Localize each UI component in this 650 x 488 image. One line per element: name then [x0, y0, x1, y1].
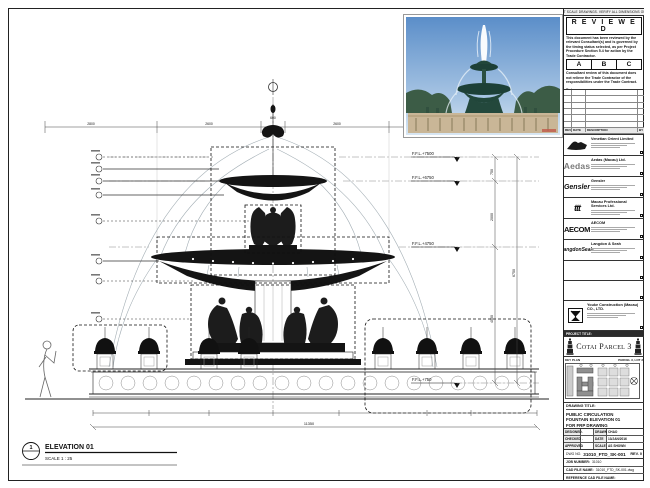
copyright-mark: [640, 193, 644, 197]
key-plan: KEY PLAN PARCEL 3, LOT 2: [564, 357, 644, 403]
fields-row: APPROVED - SCALE AS SHOWN: [564, 443, 644, 449]
copyright-mark: [640, 151, 644, 155]
consultant-name: Gensler: [591, 179, 643, 183]
stamp-body-1: This document has been reviewed by the r…: [566, 36, 642, 58]
ornamental-column-icon: [566, 338, 574, 355]
langdon-seah-logo: LangdonSeah: [564, 240, 590, 260]
address-lines: [591, 227, 643, 232]
address-lines: [591, 248, 643, 253]
consultant-name: Langdon & Seah: [591, 242, 643, 246]
copyright-mark: [640, 214, 644, 218]
drawn-label: DRAWN: [594, 429, 607, 435]
dwg-no-value: 31010_FTD_SK-001: [583, 452, 628, 457]
fountain-photo-illustration: [406, 17, 560, 135]
empty-consultant-box: [564, 261, 644, 281]
consultant-name: Venetian Orient Limited: [591, 137, 643, 141]
fields-table: DESIGNED - DRAWN CHAO CHECKED - DATE 13/…: [564, 429, 644, 450]
status-option-c[interactable]: C: [617, 60, 641, 69]
mps-logo: ttt: [564, 198, 590, 218]
ornamental-column-icon: [634, 338, 642, 355]
address-lines: [591, 210, 643, 215]
drawing-sheet: 2800 2600 600 2600 2800: [8, 8, 644, 481]
ref-cad-file-label: REFERENCE CAD FILE NAME:: [566, 476, 616, 480]
designed-value: -: [581, 429, 594, 435]
elevation-number: 1: [29, 445, 32, 451]
job-number-value: 31010: [592, 460, 601, 464]
status-option-b[interactable]: B: [592, 60, 617, 69]
project-name: Cotai Parcel 3: [576, 342, 632, 351]
approved-label: APPROVED: [564, 443, 581, 449]
sheet-footer: JOB NUMBER:31010 CAD FILE NAME:31010_FTD…: [564, 459, 644, 481]
rev-col-header: REV: [564, 128, 572, 132]
review-stamp: R E V I E W E D This document has been r…: [564, 16, 644, 90]
dim-top-4: 2600: [333, 122, 341, 126]
stamp-body-2: Consultant review of this document does …: [566, 71, 642, 84]
fields-row: CHECKED - DATE 13/JAN/2016: [564, 436, 644, 443]
gensler-logo: Gensler: [564, 177, 590, 197]
dim-right-750: 750: [490, 169, 494, 175]
fountain-structure: [25, 104, 549, 399]
title-block-panel: DO NOT SCALE DRAWINGS. VERIFY ALL DIMENS…: [563, 9, 644, 480]
consultant-block-mps: ttt Macau Professional Services Ltd.: [564, 198, 644, 219]
consultant-block-venetian: Venetian Orient Limited: [564, 135, 644, 156]
level-4750: F.F.L.+4750: [412, 241, 434, 246]
elevation-label: ELEVATION 01: [45, 444, 94, 451]
dwg-no-label: DWG NO.: [566, 452, 581, 456]
level-750: F.F.L.+750: [412, 377, 432, 382]
description-col-header: DESCRIPTION: [586, 128, 637, 132]
dim-right-6750: 6750: [512, 269, 516, 277]
address-lines: [591, 185, 643, 190]
cad-file-label: CAD FILE NAME:: [566, 468, 594, 472]
aecom-logo: AECOM: [564, 219, 590, 239]
revision-header-row: REV DATE DESCRIPTION BY: [564, 128, 644, 134]
aedas-logo: Aedas: [564, 156, 590, 176]
venetian-lion-logo: [564, 135, 590, 155]
status-option-a[interactable]: A: [567, 60, 592, 69]
consultant-block-aecom: AECOM AECOM: [564, 219, 644, 240]
level-6750: F.F.L.+6750: [412, 175, 434, 180]
consultant-name: Macau Professional Services Ltd.: [591, 200, 643, 208]
key-plan-map: [565, 363, 640, 399]
reference-photo: [403, 14, 563, 138]
sheet-note: DO NOT SCALE DRAWINGS. VERIFY ALL DIMENS…: [564, 9, 644, 16]
reviewed-title: R E V I E W E D: [566, 17, 642, 35]
scale-value: AS SHOWN: [607, 443, 644, 449]
address-lines: [587, 313, 643, 318]
by-col-header: BY: [637, 128, 644, 132]
bottom-dimensions: 11350: [90, 410, 540, 430]
date-value: 13/JAN/2016: [607, 436, 644, 442]
job-number-label: JOB NUMBER:: [566, 460, 590, 464]
elevation-scale: SCALE 1 : 25: [45, 456, 73, 461]
consultant-block-gensler: Gensler Gensler: [564, 177, 644, 198]
copyright-mark: [640, 256, 644, 260]
project-title-label-text: PROJECT TITLE:: [566, 332, 592, 336]
level-7500: F.F.L.+7500: [412, 151, 434, 156]
contractor-name: Youke Construction (Macau) CO., LTD.: [587, 303, 643, 312]
elevation-title: 1 ELEVATION 01 SCALE 1 : 25: [22, 443, 177, 466]
dim-right-2000: 2000: [490, 213, 494, 221]
address-lines: [591, 143, 643, 148]
dim-right-4000: 4000: [490, 315, 494, 323]
copyright-mark: [640, 276, 644, 280]
photo-watermark: [542, 129, 556, 132]
checked-label: CHECKED: [564, 436, 581, 442]
consultant-block-langdon: LangdonSeah Langdon & Seah: [564, 240, 644, 261]
revision-table: REV DATE DESCRIPTION BY: [564, 90, 644, 135]
contractor-logo: [564, 308, 586, 323]
dim-overall: 11350: [304, 422, 314, 426]
dim-top-1: 2800: [87, 122, 95, 126]
consultant-name: AECOM: [591, 221, 643, 225]
key-plan-parcel: PARCEL 3, LOT 2: [618, 358, 643, 362]
consultant-block-aedas: Aedas Aedas (Macau) Ltd.: [564, 156, 644, 177]
copyright-mark: [640, 235, 644, 239]
approved-value: -: [581, 443, 594, 449]
address-lines: [591, 164, 643, 169]
dwg-number-row: DWG NO. 31010_FTD_SK-001 REV. 0: [564, 450, 644, 459]
empty-consultant-box: [564, 281, 644, 301]
contractor-block: Youke Construction (Macau) CO., LTD.: [564, 301, 644, 331]
date-label: DATE: [594, 436, 607, 442]
scale-figure: [39, 341, 56, 397]
dim-top-2: 2600: [205, 122, 213, 126]
consultant-name: Aedas (Macau) Ltd.: [591, 158, 643, 162]
cad-file-value: 31010_FTD_SK-001.dwg: [596, 468, 634, 472]
copyright-mark: [640, 296, 644, 300]
designed-label: DESIGNED: [564, 429, 581, 435]
fields-row: DESIGNED - DRAWN CHAO: [564, 429, 644, 436]
review-status-options: A B C: [566, 59, 642, 70]
project-name-box: Cotai Parcel 3: [564, 337, 644, 357]
date-col-header: DATE: [572, 128, 586, 132]
copyright-mark: [640, 326, 644, 330]
sheet-note-text: DO NOT SCALE DRAWINGS. VERIFY ALL DIMENS…: [564, 10, 644, 14]
rev-value: REV. 0: [630, 452, 642, 456]
drawn-value: CHAO: [607, 429, 644, 435]
checked-value: -: [581, 436, 594, 442]
key-plan-label: KEY PLAN: [565, 358, 580, 362]
drawing-title: PUBLIC CIRCULATION FOUNTAIN ELEVATION 01…: [566, 412, 630, 429]
drawing-title-label: DRAWING TITLE:: [566, 404, 642, 410]
copyright-mark: [640, 172, 644, 176]
drawing-title-box: DRAWING TITLE: PUBLIC CIRCULATION FOUNTA…: [564, 403, 644, 429]
scale-label: SCALE: [594, 443, 607, 449]
